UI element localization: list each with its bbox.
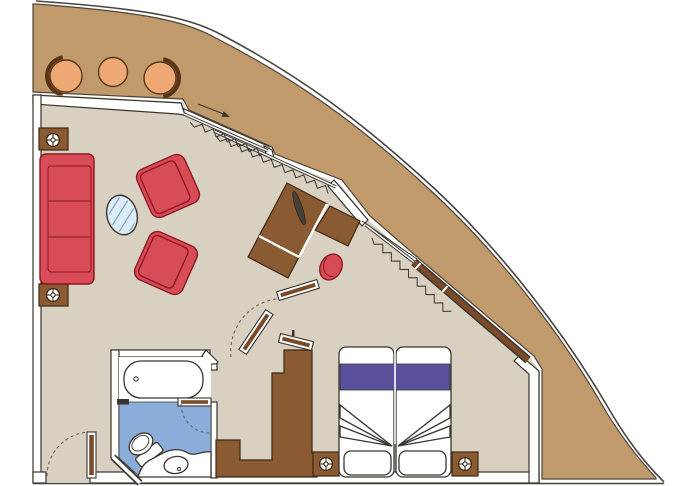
bathtub-stub (117, 399, 129, 405)
bathroom-door-leaf-core (181, 400, 208, 404)
wall-bottom-left-stub (33, 472, 46, 483)
balcony-table (99, 58, 128, 87)
lamp-icon-bed-right (459, 458, 472, 471)
floor-plan (0, 0, 680, 486)
bathroom-wall-right-stub (211, 364, 217, 370)
bathtub (124, 361, 203, 398)
floor-plan-stage (0, 0, 680, 486)
bed-pillow-left (344, 451, 391, 475)
lamp-icon-sofa-top (47, 134, 60, 147)
bathroom-wall-top (113, 350, 210, 357)
balcony-chair-right (144, 62, 176, 94)
entrance-door-leaf-core (89, 435, 94, 475)
balcony-chair-left (50, 60, 82, 92)
bathroom (117, 357, 211, 477)
lamp-icon-bed-left (320, 458, 333, 471)
lamp-icon-sofa-bottom (47, 289, 60, 302)
bed-pillow-right (399, 451, 446, 475)
door-knob (292, 330, 295, 336)
